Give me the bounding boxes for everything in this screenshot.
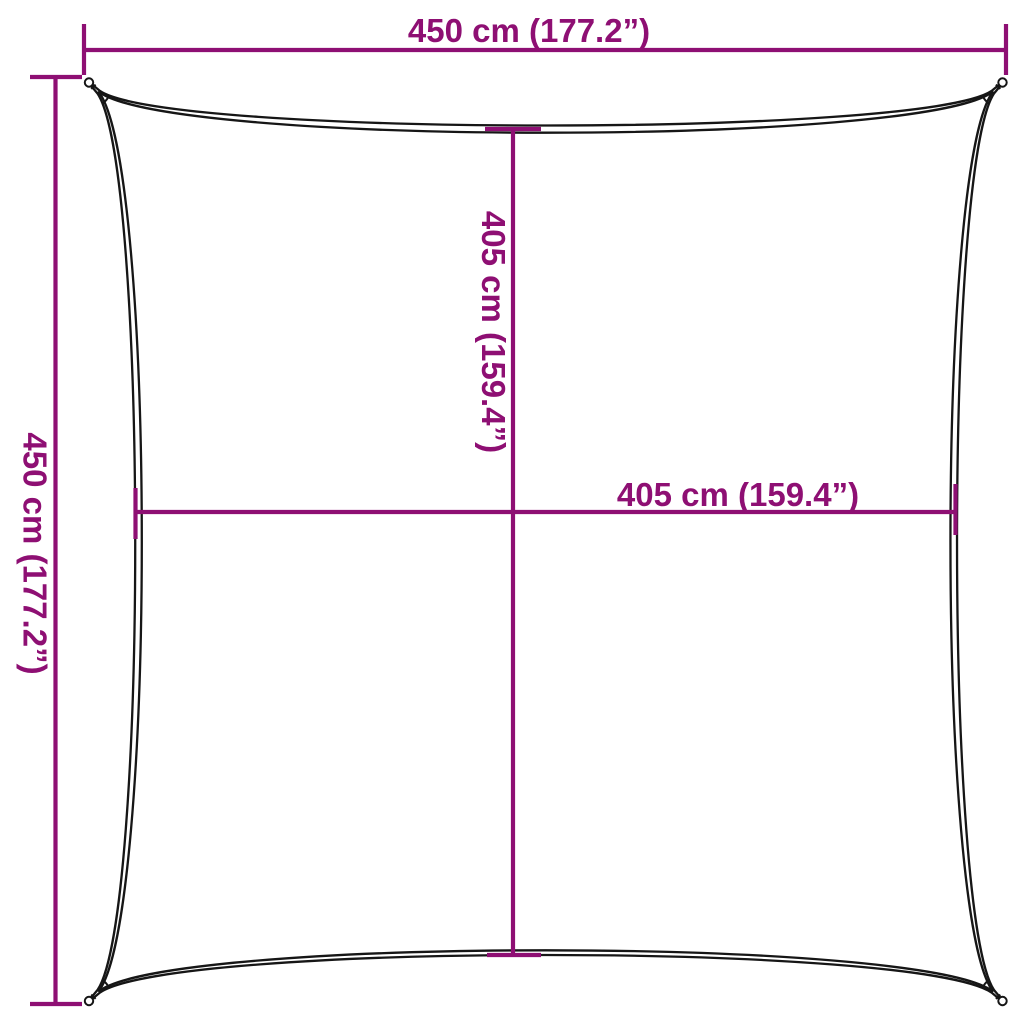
- svg-text:405 cm (159.4”): 405 cm (159.4”): [475, 211, 512, 453]
- svg-text:450 cm (177.2”): 450 cm (177.2”): [17, 432, 54, 674]
- svg-text:405 cm (159.4”): 405 cm (159.4”): [617, 476, 859, 513]
- svg-text:450 cm (177.2”): 450 cm (177.2”): [408, 12, 650, 49]
